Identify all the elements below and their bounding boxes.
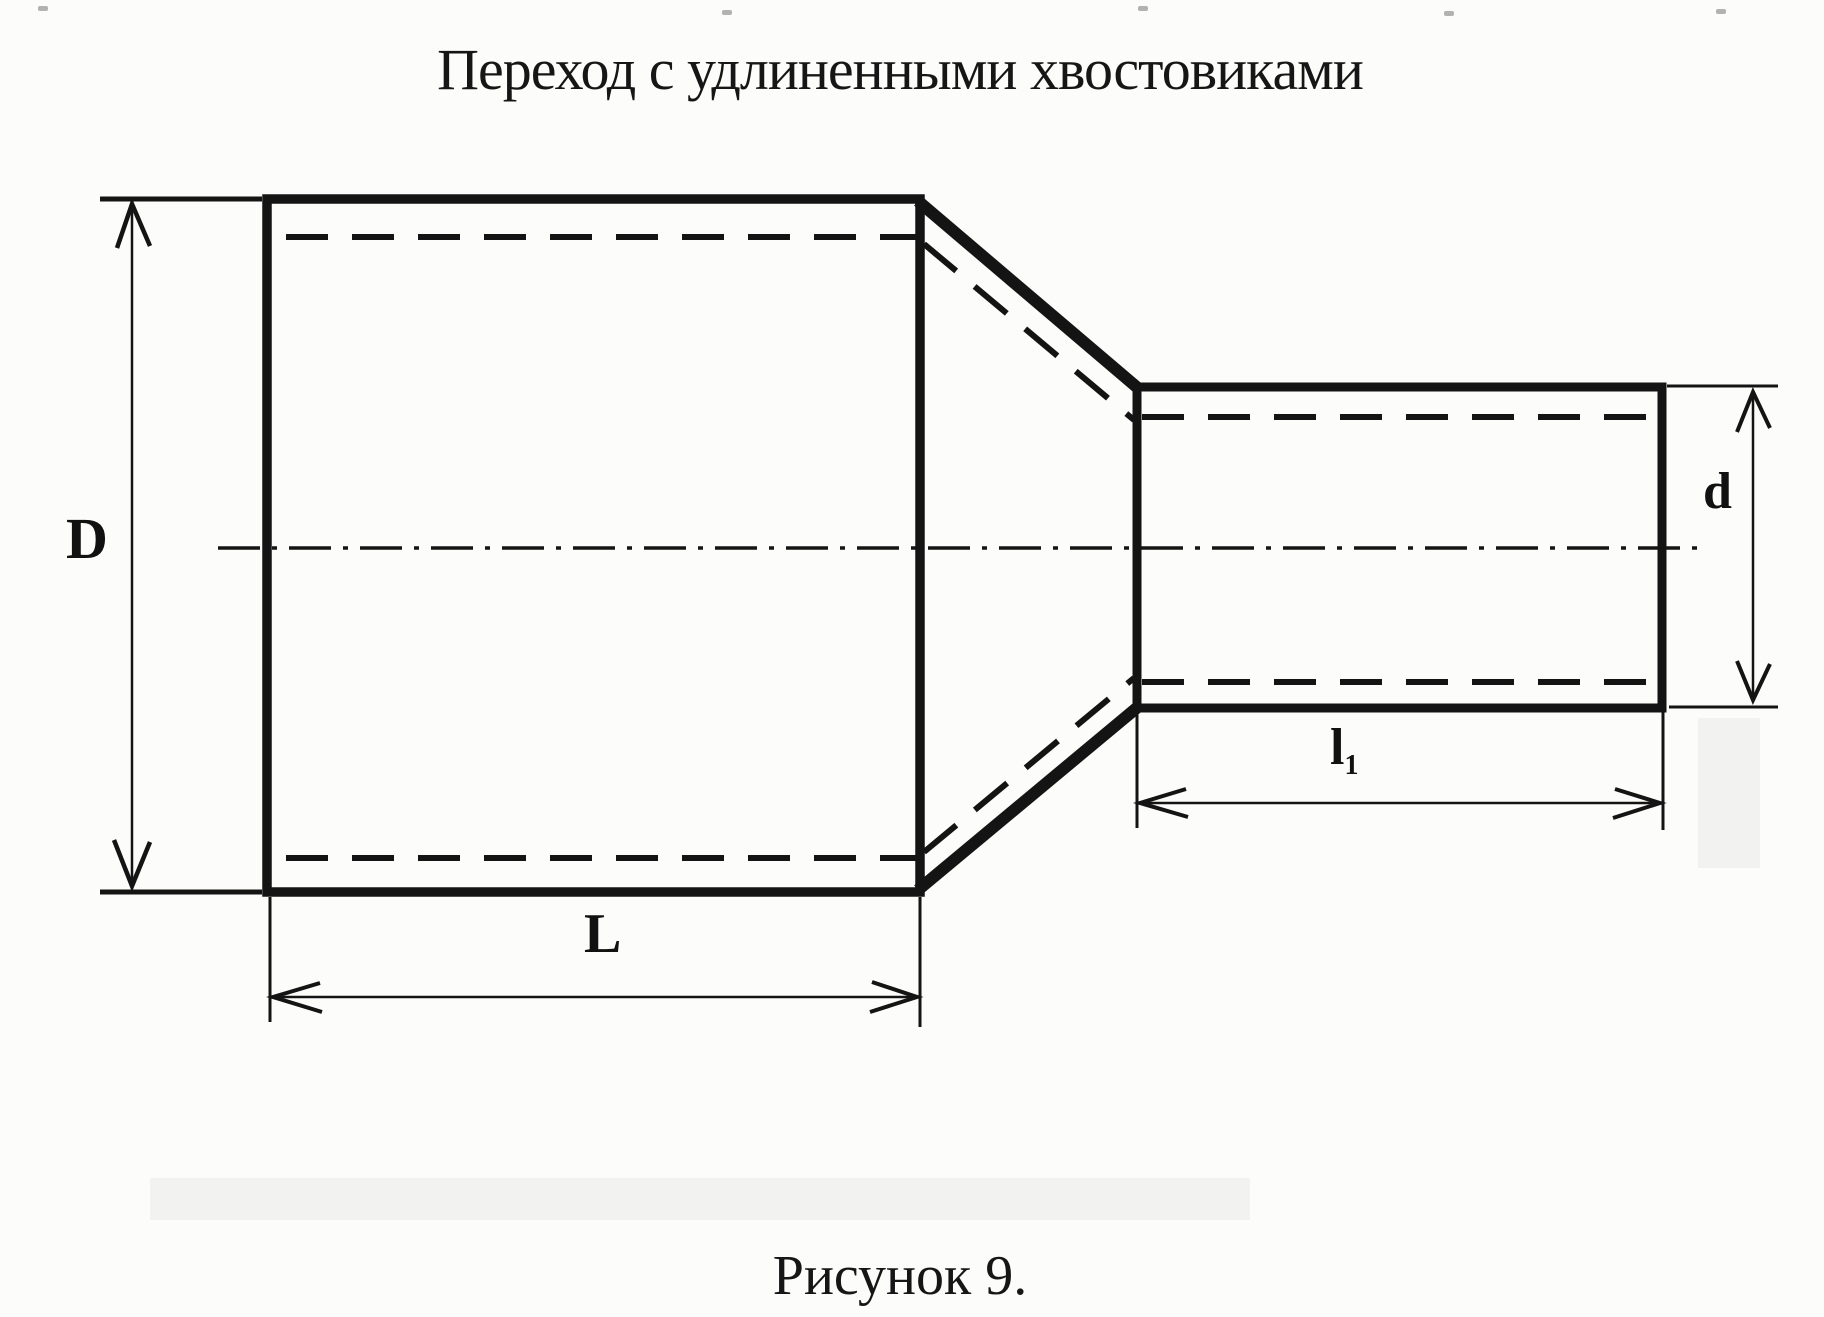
- figure-caption: Рисунок 9.: [660, 1244, 1140, 1308]
- label-small-length: l1: [1330, 722, 1358, 774]
- cone-outline: [918, 201, 1139, 890]
- reducer-line-drawing: [0, 0, 1824, 1317]
- label-large-length: L: [584, 906, 621, 962]
- large-cylinder-outline: [267, 199, 920, 892]
- dimension-D: [100, 199, 262, 892]
- arrowhead-up: [117, 204, 150, 248]
- label-small-diameter: d: [1703, 466, 1732, 518]
- scanned-drawing-page: Переход с удлиненными хвостовиками: [0, 0, 1824, 1317]
- label-large-diameter: D: [66, 510, 108, 568]
- dimension-d: [1667, 386, 1778, 707]
- label-small-length-base: l: [1330, 719, 1344, 776]
- dimension-l1: [1137, 712, 1663, 830]
- label-small-length-subscript: 1: [1344, 750, 1358, 781]
